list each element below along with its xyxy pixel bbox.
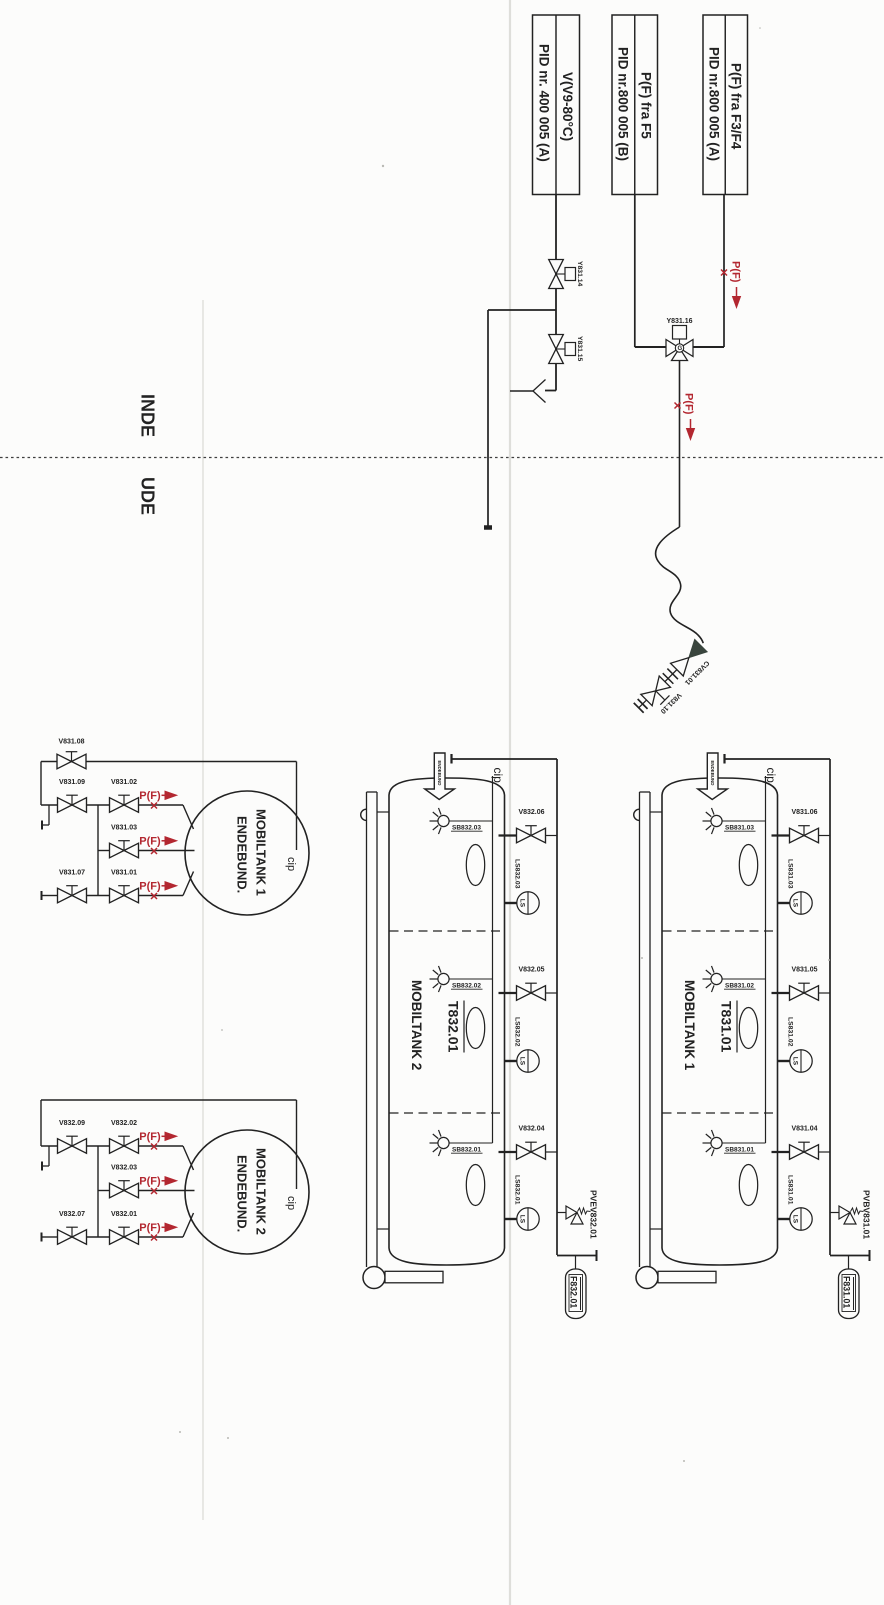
svg-text:SB832.02: SB832.02 — [452, 983, 481, 990]
svg-text:ENDEBUND.: ENDEBUND. — [234, 816, 249, 893]
svg-text:ENDEBUND: ENDEBUND — [437, 761, 442, 786]
svg-text:SB831.02: SB831.02 — [725, 983, 754, 990]
svg-text:SB831.03: SB831.03 — [725, 825, 754, 832]
svg-text:V832.02: V832.02 — [111, 1120, 137, 1127]
svg-text:F831.01: F831.01 — [841, 1276, 851, 1308]
svg-text:V831.04: V831.04 — [791, 1126, 817, 1133]
svg-text:V831.02: V831.02 — [111, 779, 137, 786]
svg-text:P(F) fra F5: P(F) fra F5 — [638, 72, 653, 139]
svg-text:G: G — [677, 346, 682, 352]
svg-text:V832.05: V832.05 — [518, 967, 544, 974]
svg-text:P(F): P(F) — [139, 1131, 161, 1143]
svg-text:V831.03: V831.03 — [111, 825, 137, 832]
svg-text:PID nr.800 005 (B): PID nr.800 005 (B) — [616, 47, 631, 161]
svg-text:V832.06: V832.06 — [518, 809, 544, 816]
svg-text:V832.09: V832.09 — [59, 1120, 85, 1127]
svg-text:UDE: UDE — [138, 477, 158, 515]
svg-text:LS832.02: LS832.02 — [514, 1017, 521, 1047]
svg-text:INDE: INDE — [138, 394, 158, 437]
svg-text:V831.06: V831.06 — [791, 809, 817, 816]
svg-text:PVEV832.01: PVEV832.01 — [588, 1190, 598, 1239]
svg-text:T831.01: T831.01 — [719, 1001, 735, 1053]
svg-text:V832.01: V832.01 — [111, 1211, 137, 1218]
svg-text:P(F): P(F) — [139, 1222, 161, 1234]
svg-text:ENDEBUND: ENDEBUND — [710, 761, 715, 786]
svg-text:LS831.03: LS831.03 — [787, 859, 794, 889]
svg-text:MOBILTANK 2: MOBILTANK 2 — [409, 980, 424, 1070]
svg-text:cip: cip — [491, 768, 505, 784]
svg-text:P(F): P(F) — [139, 881, 161, 893]
svg-text:V832.04: V832.04 — [518, 1126, 544, 1133]
svg-text:cip: cip — [285, 857, 297, 871]
svg-text:V832.03: V832.03 — [111, 1165, 137, 1172]
svg-text:P(F): P(F) — [683, 393, 695, 415]
svg-text:V(V9-80°C): V(V9-80°C) — [560, 72, 575, 141]
svg-text:V831.05: V831.05 — [791, 967, 817, 974]
svg-text:LS832.01: LS832.01 — [514, 1175, 521, 1205]
svg-text:V831.01: V831.01 — [111, 870, 137, 877]
svg-text:Y831.16: Y831.16 — [666, 318, 692, 325]
svg-text:LS831.01: LS831.01 — [787, 1175, 794, 1205]
svg-text:P(F): P(F) — [139, 1176, 161, 1188]
svg-text:V831.08: V831.08 — [58, 739, 84, 746]
svg-text:V832.07: V832.07 — [59, 1211, 85, 1218]
svg-text:ENDEBUND.: ENDEBUND. — [234, 1155, 249, 1232]
svg-text:V831.09: V831.09 — [59, 779, 85, 786]
svg-text:P(F): P(F) — [730, 261, 742, 283]
svg-text:PVBV831.01: PVBV831.01 — [861, 1190, 871, 1239]
svg-text:LS832.03: LS832.03 — [514, 859, 521, 889]
svg-text:P(F): P(F) — [139, 836, 161, 848]
svg-text:PID nr. 400 005 (A): PID nr. 400 005 (A) — [536, 44, 551, 162]
svg-text:LS831.02: LS831.02 — [787, 1017, 794, 1047]
svg-text:P(F) fra F3/F4: P(F) fra F3/F4 — [729, 63, 744, 150]
svg-text:MOBILTANK 1: MOBILTANK 1 — [253, 809, 268, 896]
svg-text:T832.01: T832.01 — [446, 1001, 462, 1053]
svg-text:SB832.03: SB832.03 — [452, 825, 481, 832]
svg-text:Y831.15: Y831.15 — [576, 336, 583, 362]
svg-text:P(F): P(F) — [139, 790, 161, 802]
svg-text:SB831.01: SB831.01 — [725, 1147, 754, 1154]
svg-text:cip: cip — [764, 768, 778, 784]
svg-text:PID nr.800 005 (A): PID nr.800 005 (A) — [706, 47, 721, 161]
svg-text:V831.07: V831.07 — [59, 870, 85, 877]
svg-text:Y831.14: Y831.14 — [576, 261, 583, 287]
svg-text:cip: cip — [285, 1196, 297, 1210]
svg-text:SB832.01: SB832.01 — [452, 1147, 481, 1154]
svg-text:MOBILTANK 1: MOBILTANK 1 — [682, 980, 697, 1071]
svg-text:MOBILTANK 2: MOBILTANK 2 — [253, 1148, 268, 1235]
svg-text:F832.01: F832.01 — [568, 1276, 578, 1308]
